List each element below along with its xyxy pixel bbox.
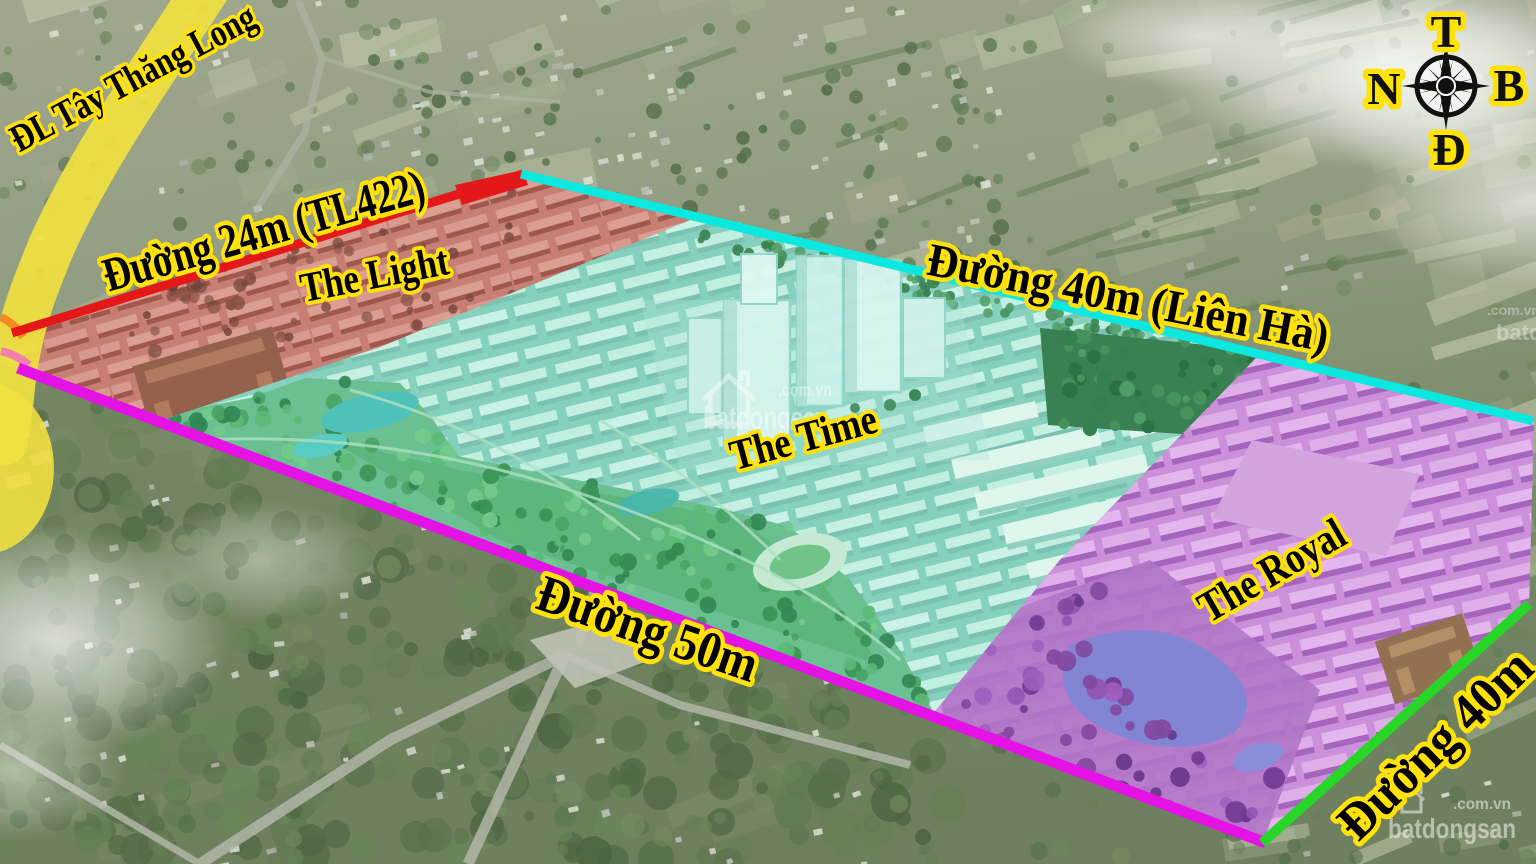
svg-text:.com.vn: .com.vn — [1453, 796, 1511, 813]
svg-text:B: B — [1494, 60, 1525, 111]
svg-text:batdongsan: batdongsan — [1388, 813, 1516, 844]
svg-text:Đ: Đ — [1432, 124, 1465, 175]
svg-text:N: N — [1367, 63, 1400, 114]
svg-text:.com.vn: .com.vn — [1487, 302, 1536, 318]
svg-text:T: T — [1431, 6, 1462, 57]
svg-text:batd: batd — [1496, 320, 1536, 345]
svg-text:.com.vn: .com.vn — [778, 380, 832, 400]
